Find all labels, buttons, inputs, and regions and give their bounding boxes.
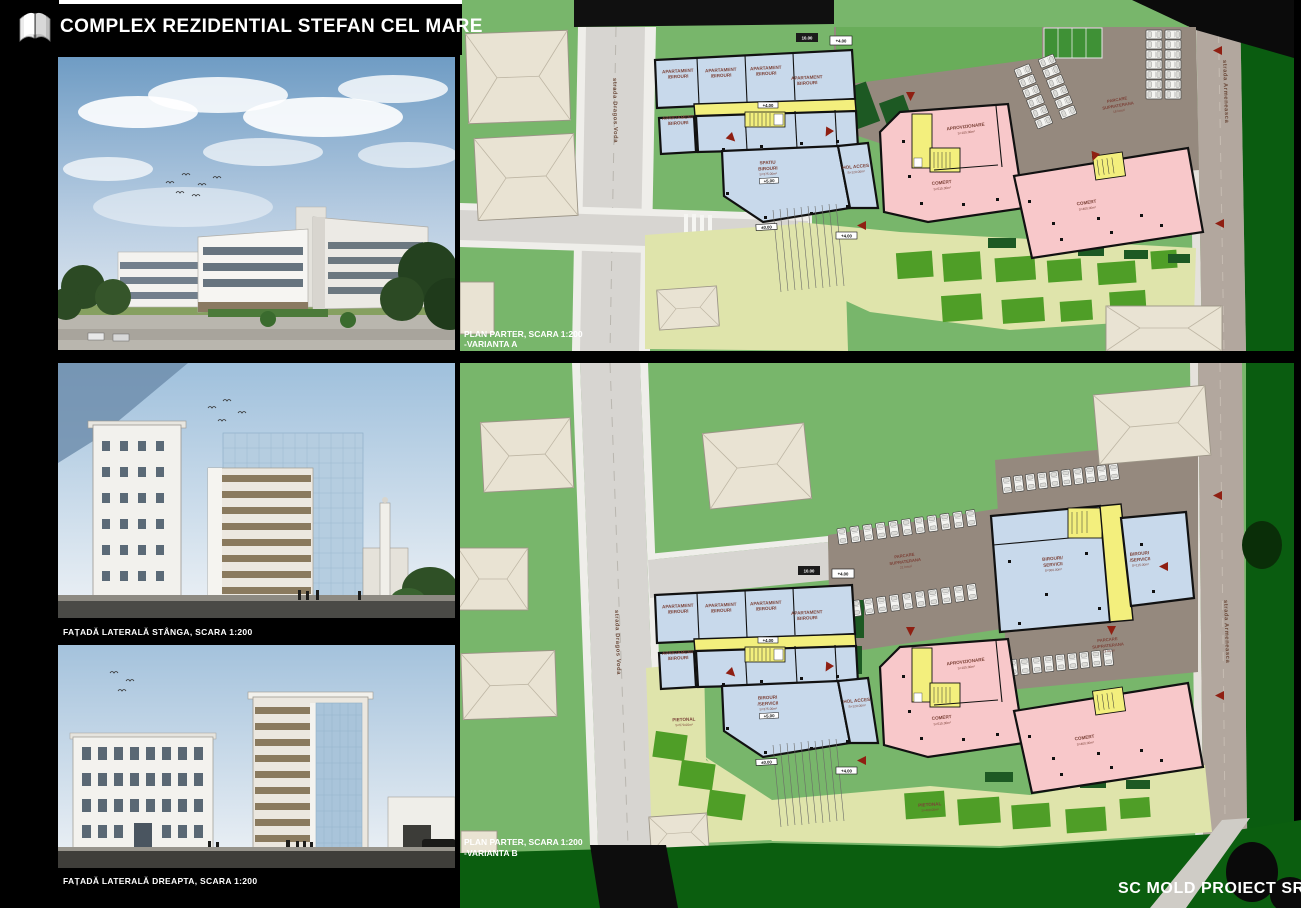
dim-value: 10.00 bbox=[802, 36, 813, 41]
right-black-edge bbox=[1294, 0, 1301, 351]
apartment-block: +4.00 APARTAMENT/BIROURI APARTAMENT/BIRO… bbox=[655, 585, 858, 689]
pietonal-left-label: PIETONAL S=570.00m² bbox=[672, 717, 696, 728]
company-name: SC MOLD PROIECT SRL bbox=[1118, 880, 1301, 898]
ground bbox=[58, 851, 455, 868]
level-value: +4.00 bbox=[836, 39, 847, 44]
plan-caption-line1: PLAN PARTER, SCARA 1:200 bbox=[464, 837, 583, 847]
corridor-level-marker: +4.00 bbox=[758, 102, 778, 108]
apartment-block: +4.00 APARTAMENT/BIROURI APARTAMENT/BIRO… bbox=[655, 50, 858, 154]
plaza-level-marker: +4.00 bbox=[836, 767, 857, 774]
birouri-building-large: BIROURI/ SERVICII S=300.00m² bbox=[991, 506, 1110, 632]
tower bbox=[248, 692, 373, 855]
title-bar: COMPLEX REZIDENTIAL STEFAN CEL MARE bbox=[0, 0, 462, 55]
dim-value: 10.00 bbox=[804, 569, 815, 574]
elevation-right-panel bbox=[58, 645, 455, 868]
plan-b-variant-b: PARCARE SUPRATERANA 21 locuri PARCARE SU… bbox=[460, 363, 1301, 908]
room-area: S=570.00m² bbox=[675, 723, 693, 728]
right-wall-and-car bbox=[388, 797, 455, 855]
level-value: +5.00 bbox=[764, 178, 776, 184]
white-tower bbox=[88, 421, 186, 603]
room-label: PIETONAL bbox=[672, 717, 695, 723]
left-building bbox=[70, 733, 216, 855]
street-right bbox=[1188, 0, 1246, 351]
perspective-render bbox=[58, 57, 455, 350]
presentation-board: COMPLEX REZIDENTIAL STEFAN CEL MARE bbox=[0, 0, 1301, 908]
comert-building-1: APROVIZIONARE S=105.00m² COMERT S=515.00… bbox=[880, 104, 1024, 222]
ground bbox=[58, 601, 455, 618]
plaza-level-marker: +4.00 bbox=[836, 232, 857, 239]
level-value: +4.00 bbox=[841, 768, 852, 773]
board-title: COMPLEX REZIDENTIAL STEFAN CEL MARE bbox=[60, 16, 483, 38]
level-value: ±0.00 bbox=[761, 224, 773, 230]
level-value: +4.00 bbox=[838, 572, 849, 577]
room-label: SPATIU bbox=[759, 160, 776, 166]
level-value: +4.00 bbox=[763, 638, 774, 643]
room-label: BIROURI bbox=[758, 165, 778, 171]
perspective-render-panel bbox=[58, 57, 455, 350]
plan-caption-line2: -VARIANTA A bbox=[464, 339, 517, 349]
top-road-shadow bbox=[574, 0, 834, 27]
sidewalk bbox=[58, 595, 455, 602]
elevation-left-panel bbox=[58, 363, 455, 618]
ground-level-marker: ±0.00 bbox=[756, 223, 777, 230]
plan-a-variant-a: PARCARE SUPRATERANA 18 locuri bbox=[460, 0, 1301, 351]
elevation-left bbox=[58, 363, 455, 618]
bottom-road-shadow bbox=[590, 845, 678, 908]
elevation-left-caption: FAȚADĂ LATERALĂ STÂNGA, SCARA 1:200 bbox=[58, 618, 455, 645]
level-value: ±0.00 bbox=[761, 759, 773, 765]
stair-core bbox=[745, 112, 785, 127]
street-name-left: strada Dragos Voda bbox=[611, 78, 618, 143]
company-logo-icon bbox=[14, 7, 56, 49]
header-top-strip bbox=[59, 0, 462, 4]
stair-core bbox=[745, 647, 785, 662]
elevation-right-caption: FAȚADĂ LATERALĂ DREAPTA, SCARA 1:200 bbox=[58, 868, 455, 893]
service-core bbox=[1092, 687, 1125, 715]
comert-building-1: APROVIZIONARE S=105.00m² COMERT S=515.00… bbox=[880, 639, 1024, 757]
plan-caption-line1: PLAN PARTER, SCARA 1:200 bbox=[464, 329, 583, 339]
ground-level-marker: ±0.00 bbox=[756, 758, 777, 765]
level-value: +4.00 bbox=[763, 103, 774, 108]
service-core bbox=[1068, 508, 1102, 538]
level-value: +5.00 bbox=[764, 713, 776, 719]
birouri-building-small: BIROURI /SERVICII S=115.00m² bbox=[1121, 512, 1194, 606]
striped-building bbox=[208, 468, 313, 608]
plan-caption-line2: -VARIANTA B bbox=[464, 848, 518, 858]
elevation-right bbox=[58, 645, 455, 868]
level-value: +4.00 bbox=[841, 233, 852, 238]
room-label: BIROURI bbox=[758, 695, 778, 701]
corridor-level-marker: +4.00 bbox=[758, 637, 778, 643]
